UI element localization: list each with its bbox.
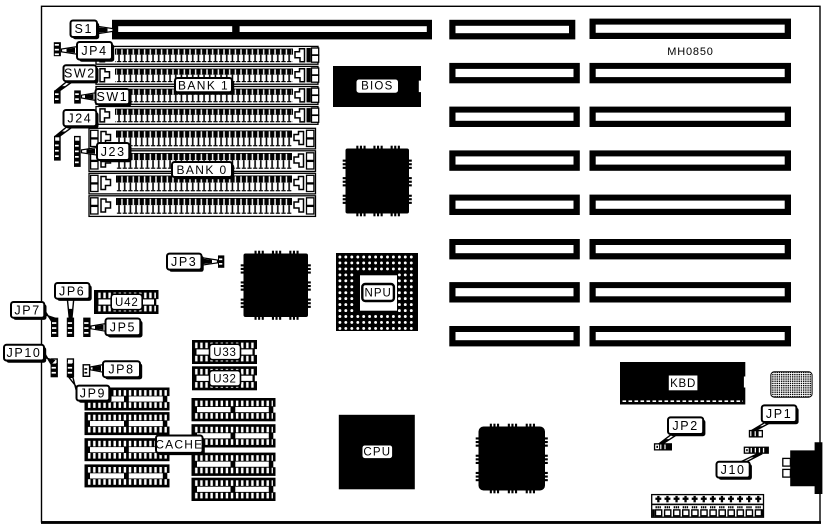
- svg-text:U42: U42: [115, 297, 139, 309]
- svg-text:JP1: JP1: [766, 407, 792, 421]
- svg-text:NPU: NPU: [365, 288, 392, 300]
- svg-text:SW1: SW1: [96, 90, 128, 104]
- svg-text:BANK 0: BANK 0: [176, 163, 227, 177]
- svg-text:CACHE: CACHE: [155, 438, 203, 452]
- svg-text:U33: U33: [213, 347, 237, 359]
- svg-text:J24: J24: [67, 112, 92, 126]
- svg-text:JP3: JP3: [171, 255, 197, 269]
- svg-text:MH0850: MH0850: [667, 46, 713, 58]
- svg-text:JP7: JP7: [14, 303, 40, 317]
- svg-text:J10: J10: [721, 463, 746, 477]
- svg-text:JP6: JP6: [59, 284, 85, 298]
- svg-text:BANK 1: BANK 1: [178, 79, 229, 93]
- svg-text:J23: J23: [101, 145, 126, 159]
- svg-text:CPU: CPU: [363, 447, 391, 459]
- svg-text:U32: U32: [213, 374, 237, 386]
- svg-text:JP5: JP5: [110, 320, 136, 334]
- svg-text:JP9: JP9: [80, 387, 106, 401]
- svg-text:JP8: JP8: [108, 363, 134, 377]
- svg-text:KBD: KBD: [670, 378, 696, 390]
- svg-text:JP4: JP4: [81, 44, 107, 58]
- svg-text:S1: S1: [75, 22, 94, 36]
- svg-text:SW2: SW2: [64, 67, 96, 81]
- svg-text:JP10: JP10: [7, 346, 42, 360]
- svg-text:JP2: JP2: [672, 419, 698, 433]
- svg-text:BIOS: BIOS: [361, 81, 393, 93]
